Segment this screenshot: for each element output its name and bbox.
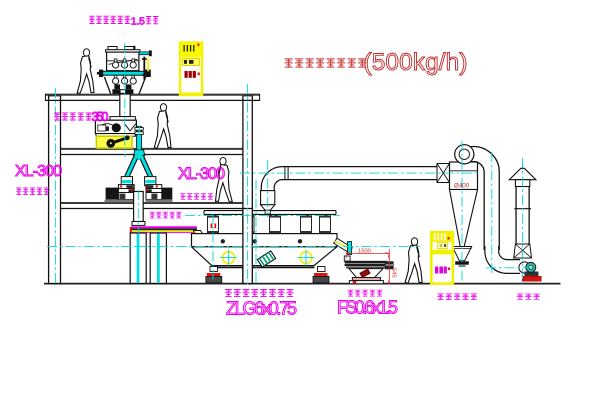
svg-text:(500kg/h): (500kg/h): [364, 49, 468, 76]
svg-text:XL-300: XL-300: [178, 165, 225, 183]
svg-text:Ø400: Ø400: [454, 183, 470, 190]
svg-text:545: 545: [391, 268, 397, 278]
svg-text:1500: 1500: [358, 248, 371, 254]
svg-text:350: 350: [92, 110, 109, 124]
svg-text:ZLG6x0.75: ZLG6x0.75: [226, 299, 297, 319]
svg-text:XL-300: XL-300: [15, 163, 62, 180]
svg-text:1.5: 1.5: [131, 16, 145, 28]
svg-text:FS0.6x1.5: FS0.6x1.5: [337, 298, 398, 318]
